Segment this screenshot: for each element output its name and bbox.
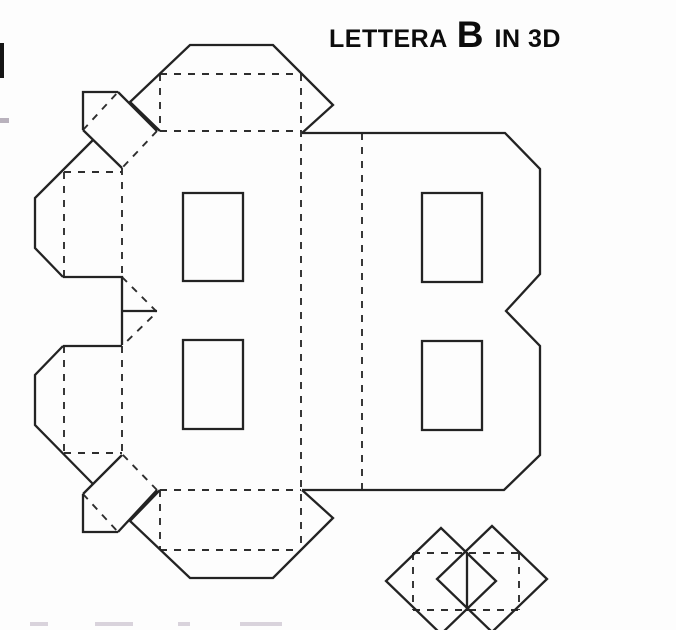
papercraft-template-page: LETTERA B IN 3D: [0, 0, 676, 630]
solid-cut-lines: [35, 45, 547, 630]
title-letter-b: B: [457, 14, 484, 56]
title-word-in-3d: IN 3D: [495, 25, 561, 54]
title-word-lettera: LETTERA: [329, 25, 448, 54]
scan-artifact-gray-dash: [0, 118, 9, 123]
scan-artifact-black-bar: [0, 43, 4, 78]
page-title: LETTERA B IN 3D: [329, 14, 561, 56]
scan-artifact-bottom-smudges: [30, 622, 282, 626]
letter-b-net-diagram: [0, 0, 676, 630]
